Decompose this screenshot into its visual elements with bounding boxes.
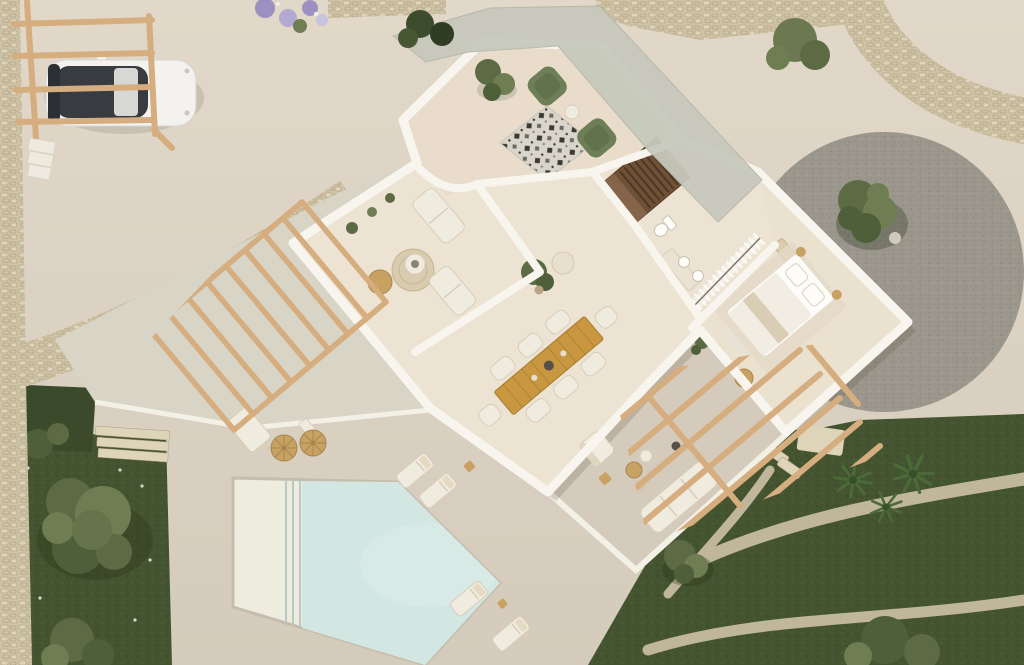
olive-tree-large: [42, 478, 132, 574]
straw-parasol: [271, 435, 297, 461]
car-rear-glass: [48, 64, 60, 122]
stone-steps-west: [94, 426, 170, 462]
car-headlight: [185, 69, 190, 74]
coffee-table-round: [626, 462, 642, 478]
coffee-table-round: [640, 450, 652, 462]
aerial-villa-render: [0, 0, 1024, 665]
houseplant: [367, 207, 377, 217]
car-headlight: [185, 111, 190, 116]
coffee-table-tray: [411, 260, 419, 268]
straw-parasol: [300, 430, 326, 456]
sink: [679, 257, 690, 268]
terrace-side-table: [565, 105, 579, 119]
car-sunroof-panel: [114, 68, 138, 116]
houseplant: [346, 222, 358, 234]
houseplant: [385, 193, 395, 203]
hall-rug: [552, 252, 574, 274]
bedroom-plant: [691, 345, 701, 355]
boulder: [889, 232, 901, 244]
sink: [693, 271, 704, 282]
